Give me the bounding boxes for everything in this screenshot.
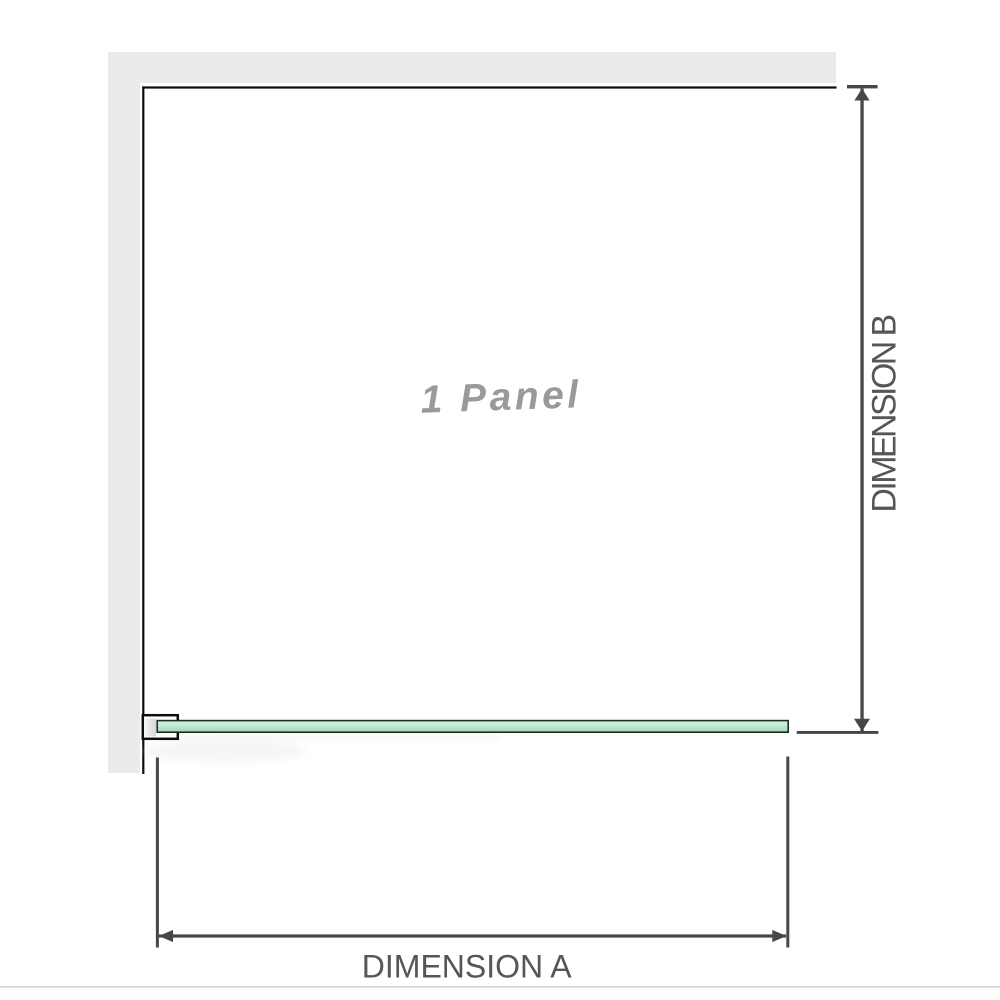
svg-text:DIMENSION A: DIMENSION A bbox=[362, 949, 572, 985]
svg-text:1 Panel: 1 Panel bbox=[420, 373, 582, 422]
svg-text:DIMENSION B: DIMENSION B bbox=[866, 315, 904, 512]
